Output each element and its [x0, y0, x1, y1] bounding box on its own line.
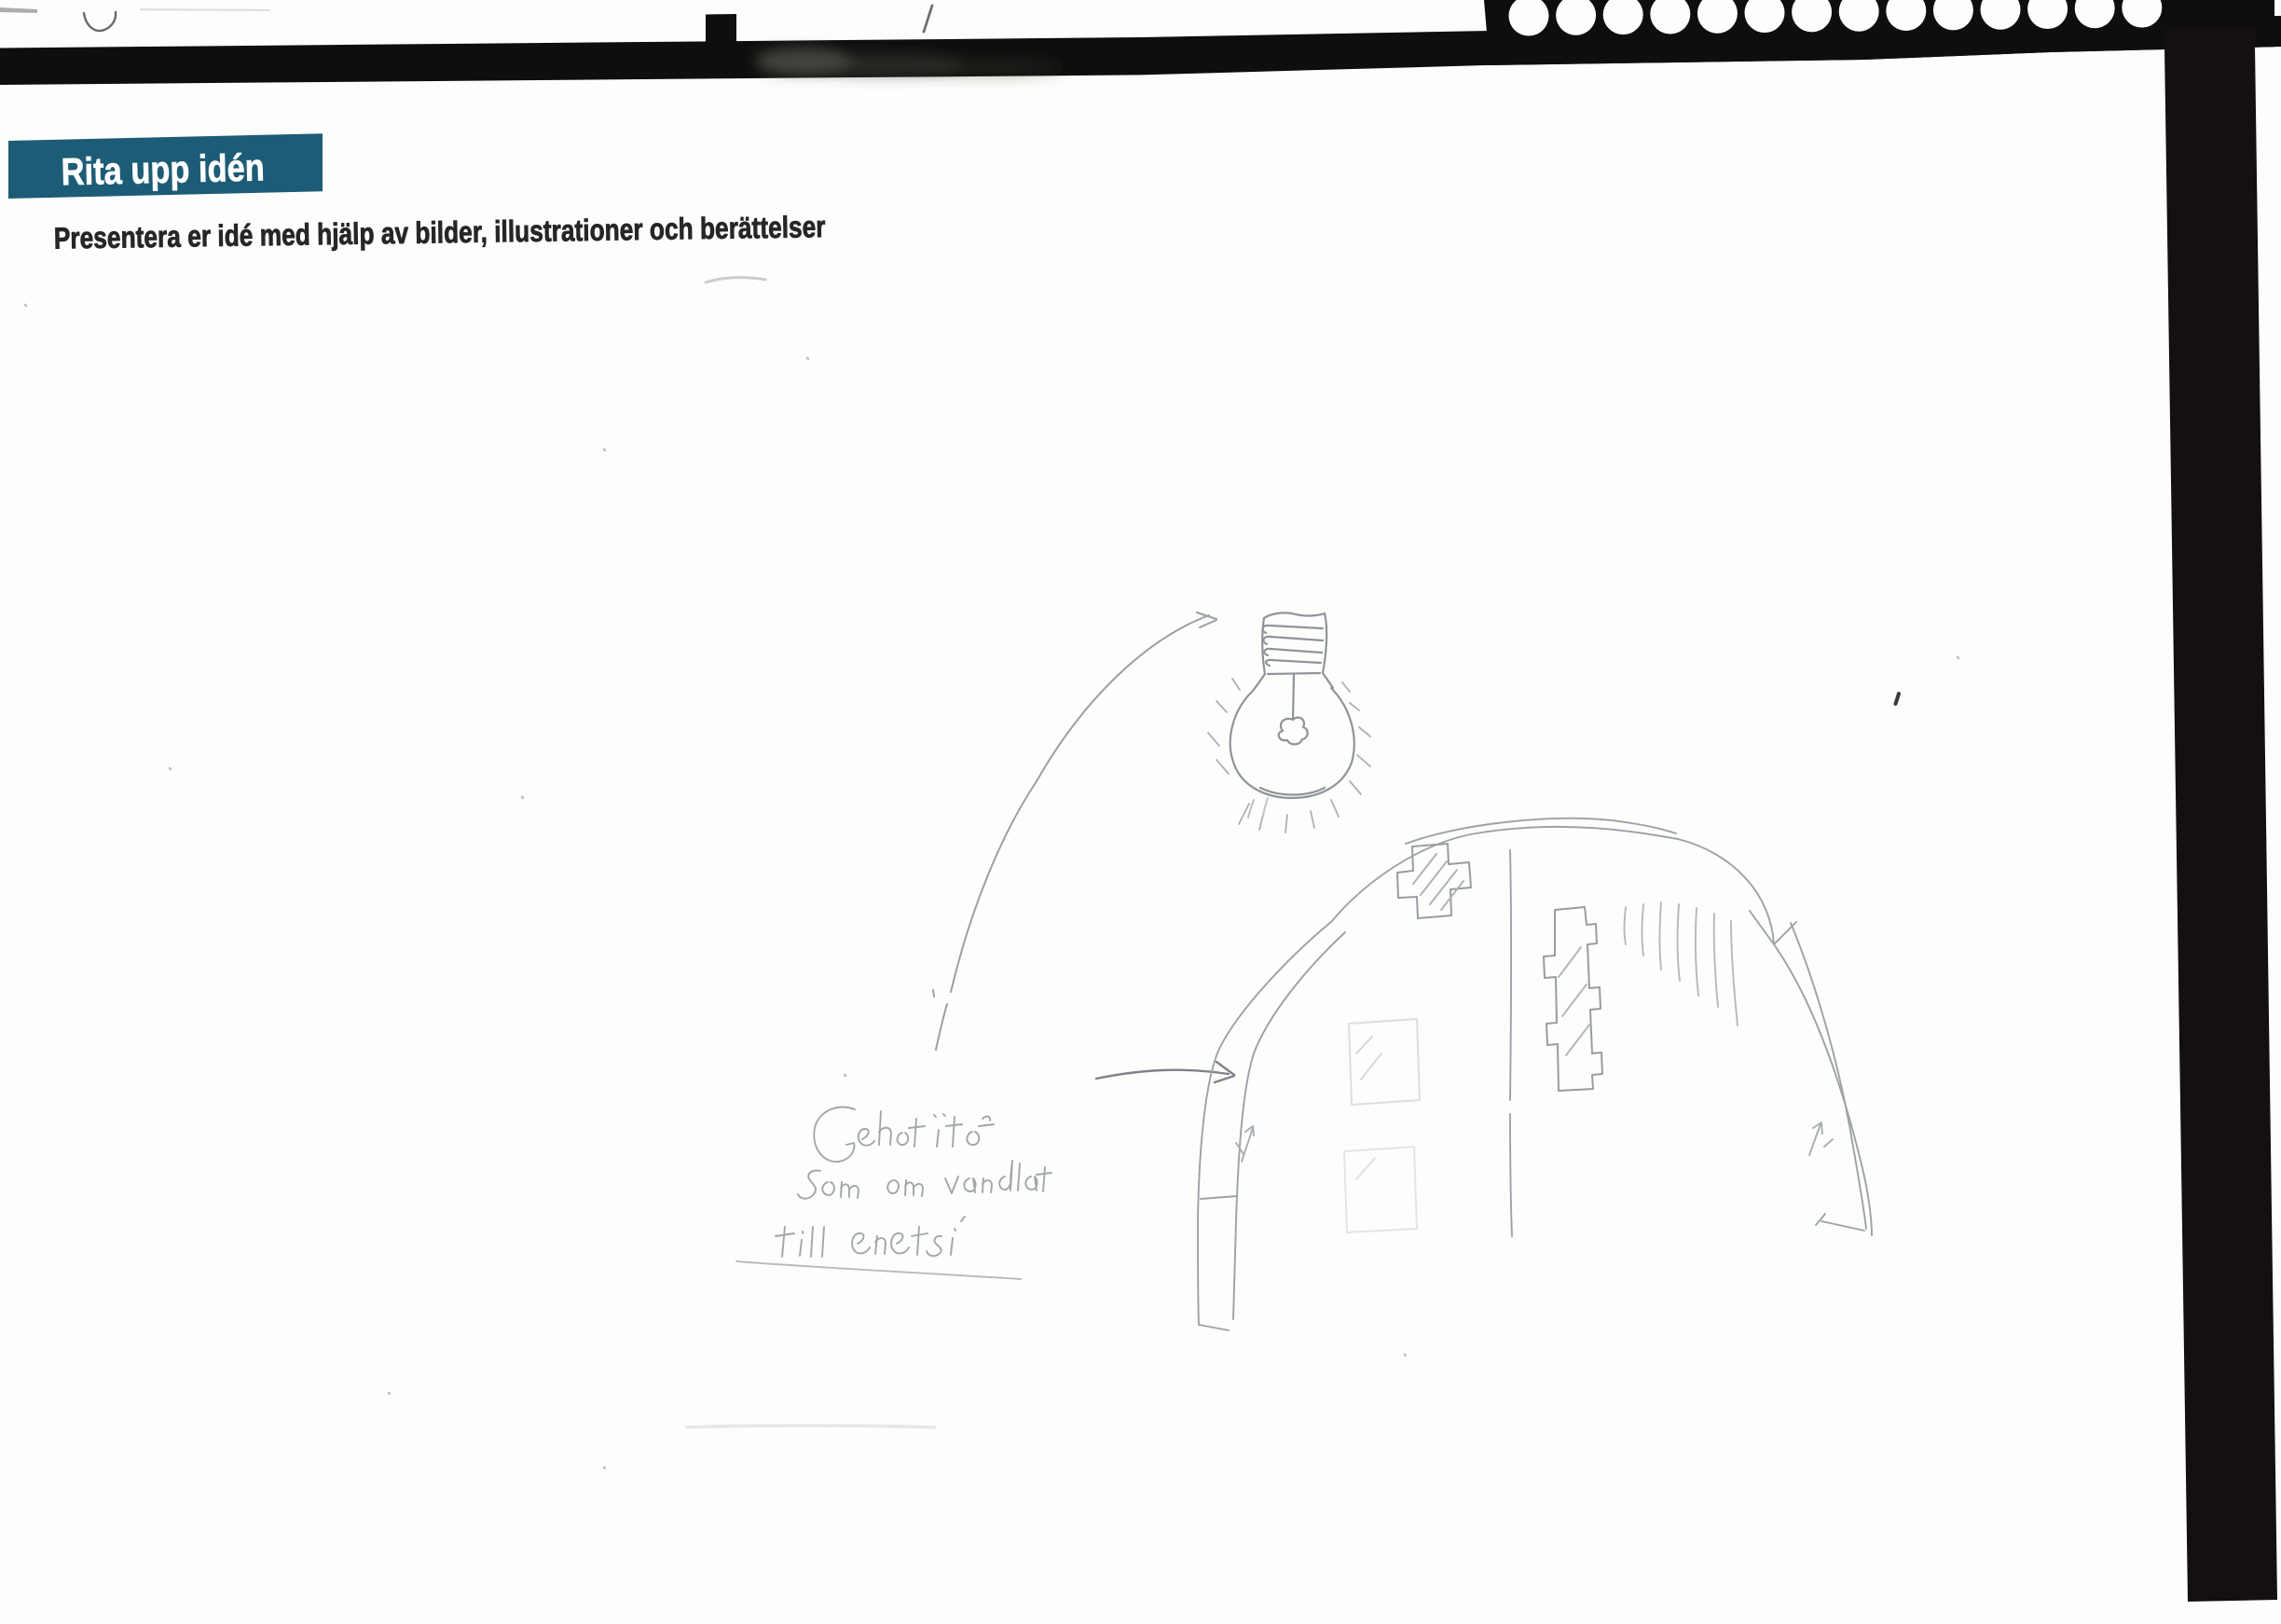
svg-text:Rita upp idén: Rita upp idén [61, 147, 265, 194]
